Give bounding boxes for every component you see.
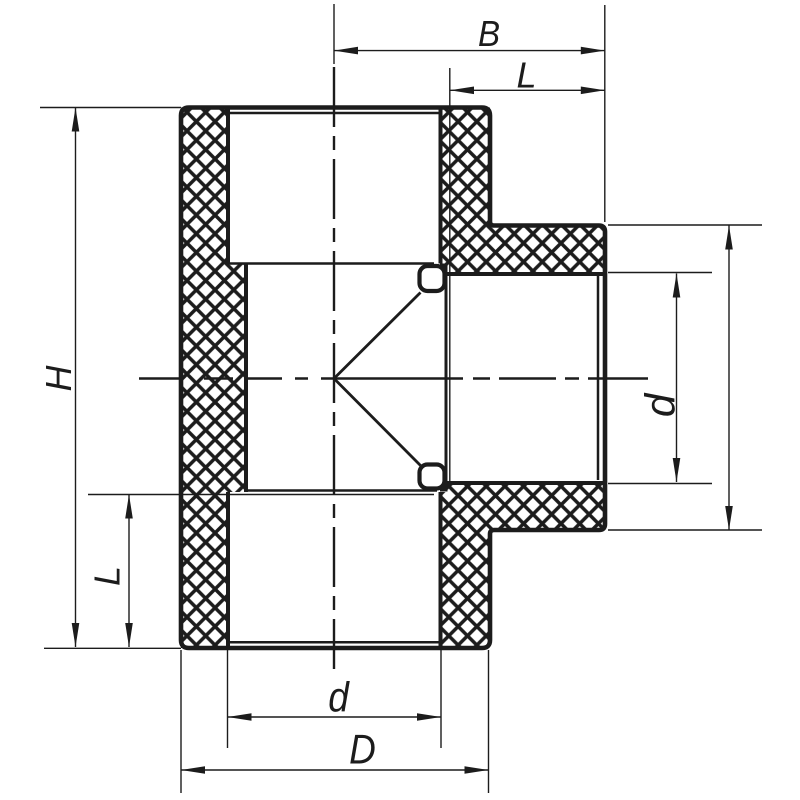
svg-text:L: L — [516, 55, 536, 96]
svg-text:d: d — [637, 392, 684, 417]
svg-text:B: B — [478, 15, 500, 55]
svg-text:H: H — [38, 365, 79, 392]
svg-text:L: L — [87, 566, 128, 586]
svg-text:D: D — [349, 726, 376, 773]
svg-text:d: d — [328, 674, 350, 721]
